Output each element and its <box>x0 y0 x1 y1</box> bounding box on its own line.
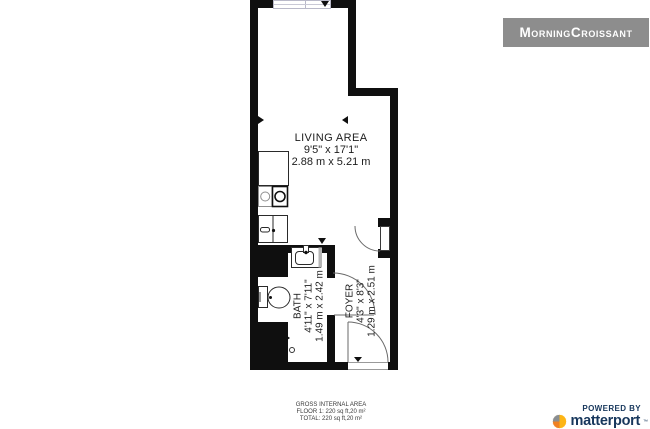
living-area-imperial: 9'5" x 17'1" <box>261 144 401 156</box>
wall-bottom-left <box>250 362 348 370</box>
kitchen-sink <box>259 187 273 207</box>
bath-label: BATH 4'11" x 7'11" 1.49 m x 2.42 m <box>293 251 326 361</box>
toilet <box>259 287 291 309</box>
footer-title: GROSS INTERNAL AREA <box>231 402 431 409</box>
gross-internal-area: GROSS INTERNAL AREA FLOOR 1: 220 sq ft,2… <box>231 402 431 423</box>
wall-bottom-right <box>388 362 398 370</box>
wall-left <box>250 0 258 370</box>
wall-block-bath-sw <box>258 322 288 362</box>
living-area-metric: 2.88 m x 5.21 m <box>261 156 401 168</box>
wall-top-left <box>250 0 273 8</box>
wall-right-upper <box>348 0 356 96</box>
window <box>273 0 331 9</box>
wall-right-lower <box>390 88 398 370</box>
matterport-wordmark: matterport <box>570 414 640 429</box>
living-area-name: LIVING AREA <box>261 132 401 144</box>
window-glass-line <box>274 4 330 5</box>
matterport-logo-icon <box>552 414 567 429</box>
closet-door-panel <box>380 226 390 251</box>
bath-imperial: 4'11" x 7'11" <box>304 251 315 361</box>
footer-total-line: TOTAL: 220 sq ft,20 m² <box>231 416 431 423</box>
kitchen-hob <box>273 187 288 207</box>
powered-by-label: POWERED BY <box>552 404 641 413</box>
foyer-metric: 1.29 m x 2.51 m <box>367 246 378 356</box>
footer-floor-line: FLOOR 1: 220 sq ft,20 m² <box>231 409 431 416</box>
morningcroissant-watermark: MorningCroissant <box>503 18 649 47</box>
entrance-threshold <box>348 362 388 370</box>
wall-bath-foyer-upper <box>327 245 335 278</box>
matterport-branding: POWERED BY matterport ™ <box>552 404 648 429</box>
wall-block-bath-nw <box>258 251 288 277</box>
foyer-name: FOYER <box>345 246 356 356</box>
living-area-label: LIVING AREA 9'5" x 17'1" 2.88 m x 5.21 m <box>261 132 401 168</box>
foyer-imperial: 4'3" x 8'3" <box>356 246 367 356</box>
kitchen-appliance <box>259 216 288 243</box>
floorplan-page: LIVING AREA 9'5" x 17'1" 2.88 m x 5.21 m… <box>0 0 650 429</box>
bath-metric: 1.49 m x 2.42 m <box>315 251 326 361</box>
foyer-label: FOYER 4'3" x 8'3" 1.29 m x 2.51 m <box>345 246 378 356</box>
wall-bath-foyer-lower <box>327 315 335 362</box>
bath-name: BATH <box>293 251 304 361</box>
trademark-symbol: ™ <box>643 419 648 425</box>
